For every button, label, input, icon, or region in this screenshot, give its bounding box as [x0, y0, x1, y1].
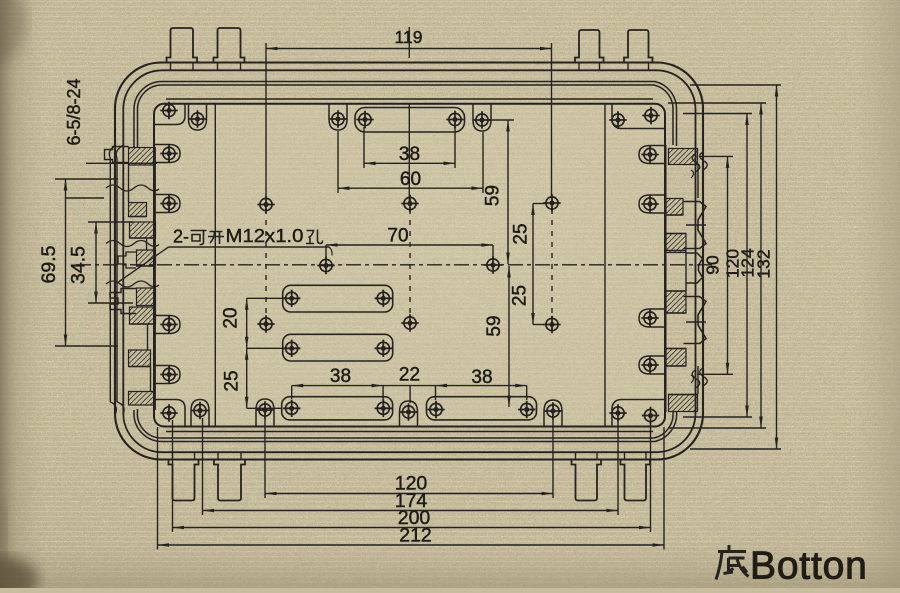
- svg-text:22: 22: [399, 365, 420, 386]
- svg-text:Botton: Botton: [750, 545, 868, 588]
- svg-text:34.5: 34.5: [68, 246, 90, 284]
- svg-text:90: 90: [703, 255, 723, 275]
- svg-text:212: 212: [399, 525, 432, 547]
- svg-text:38: 38: [330, 366, 351, 387]
- svg-text:60: 60: [400, 169, 421, 190]
- svg-text:70: 70: [387, 226, 408, 247]
- svg-text:25: 25: [510, 285, 531, 306]
- svg-text:38: 38: [399, 144, 420, 165]
- svg-text:25: 25: [222, 370, 243, 391]
- svg-text:6-5/8-24: 6-5/8-24: [64, 78, 84, 145]
- svg-text:2-: 2-: [173, 227, 189, 247]
- svg-text:20: 20: [221, 307, 242, 328]
- svg-text:69.5: 69.5: [38, 245, 60, 283]
- svg-text:38: 38: [471, 367, 492, 388]
- svg-text:132: 132: [754, 249, 774, 278]
- svg-text:25: 25: [511, 223, 532, 244]
- svg-text:119: 119: [395, 27, 423, 47]
- svg-text:59: 59: [484, 315, 505, 336]
- svg-text:59: 59: [483, 185, 504, 206]
- svg-text:M12x1.0: M12x1.0: [226, 226, 304, 246]
